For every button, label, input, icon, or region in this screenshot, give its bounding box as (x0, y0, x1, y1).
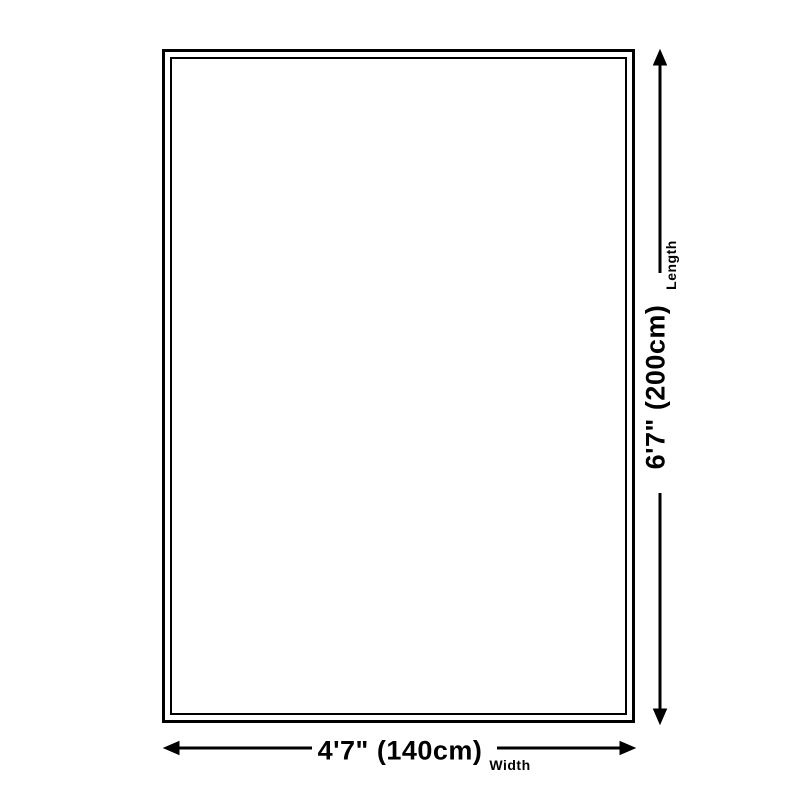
arrowhead-up-icon (654, 50, 667, 65)
dimension-diagram: 6'7" (200cm) Length 4'7" (140cm) Width (0, 0, 800, 800)
length-label: Length (663, 240, 679, 290)
arrowhead-right-icon (620, 742, 635, 755)
arrowhead-down-icon (654, 709, 667, 724)
width-value: 4'7" (140cm) (318, 736, 483, 767)
width-label: Width (489, 757, 530, 773)
product-outline-outer (162, 49, 635, 723)
length-value: 6'7" (200cm) (641, 305, 672, 470)
product-outline-inner (170, 57, 627, 715)
arrowhead-left-icon (164, 742, 179, 755)
